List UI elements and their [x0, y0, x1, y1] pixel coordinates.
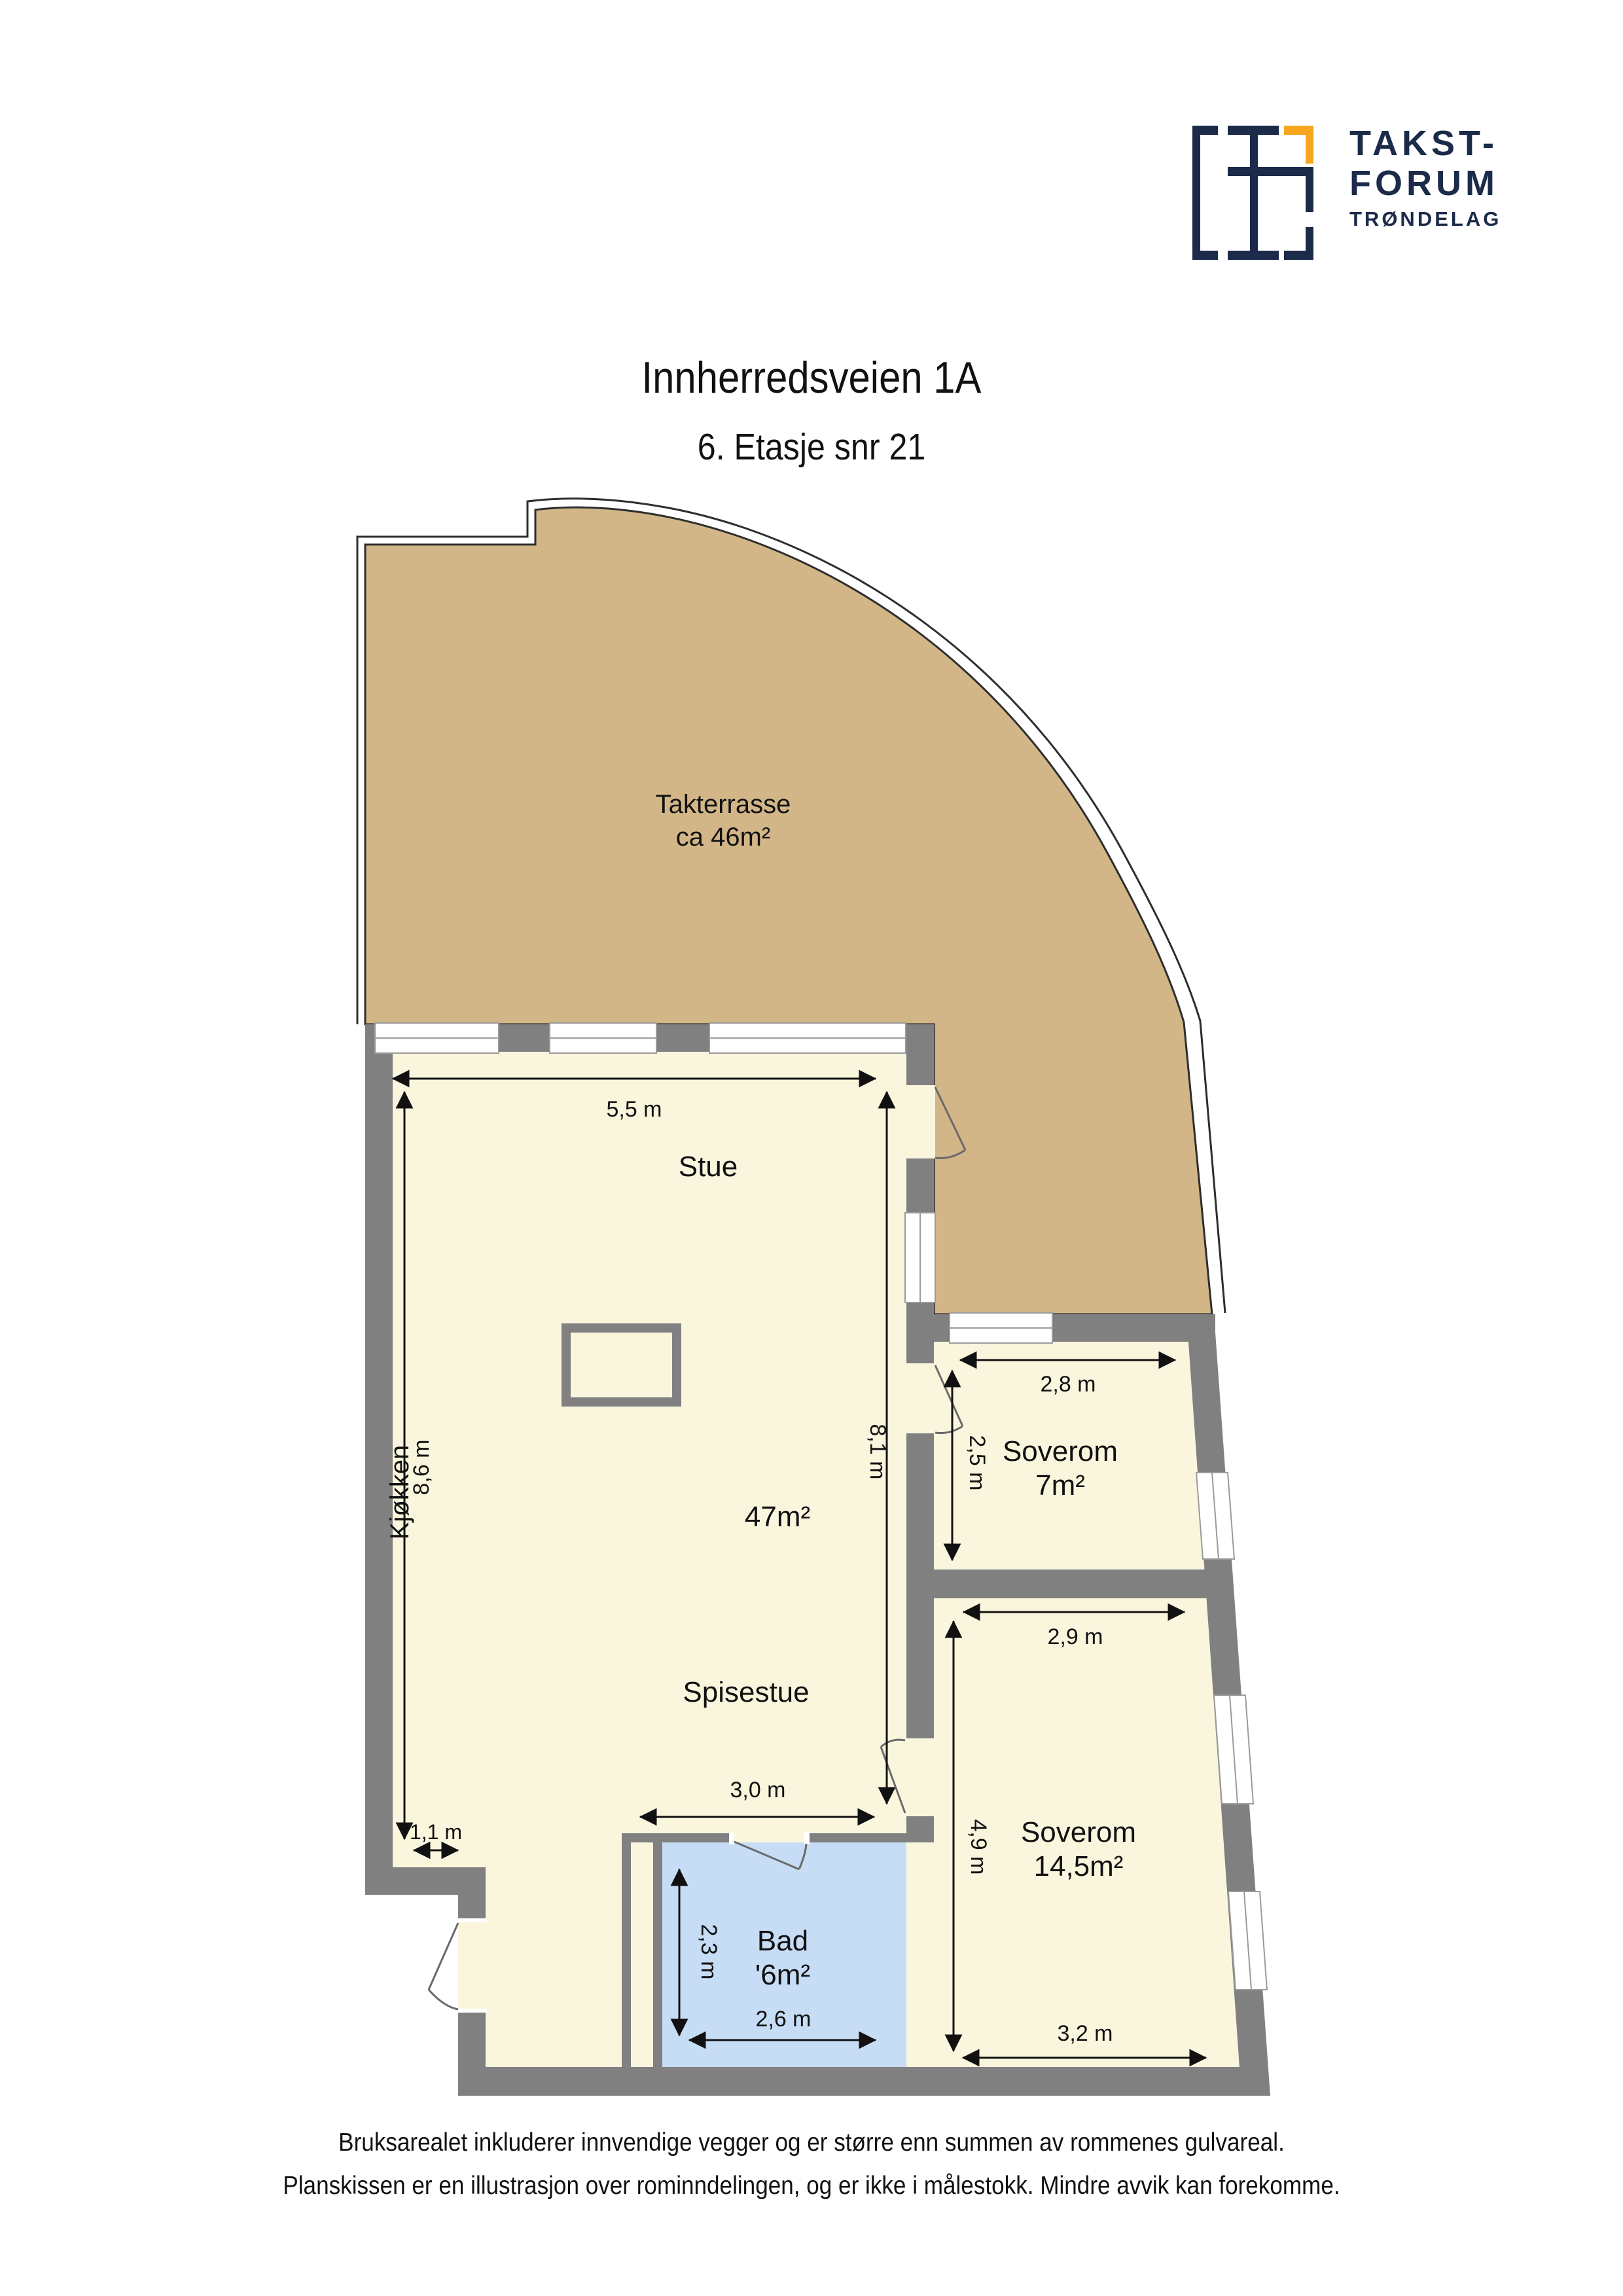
bath-door-jamb-right: [804, 1832, 810, 1844]
terrace-area-label: ca 46m²: [676, 823, 771, 852]
floorplan-page: Takterrasse ca 46m² Stue 47m² Kjøkken Sp…: [0, 0, 1623, 2296]
entry-door-jamb-bottom: [457, 2009, 487, 2013]
logo-wordmark: TAKST- FORUM TRØNDELAG: [1349, 126, 1501, 229]
entry-door-jamb-top: [457, 1918, 487, 1922]
terrace-label: Takterrasse: [656, 790, 791, 819]
logo-word-forum: FORUM: [1349, 166, 1501, 201]
dim-sov2-h: 4,9 m: [966, 1819, 991, 1874]
dim-sov2-w2: 3,2 m: [1057, 2021, 1113, 2046]
bath-door-jamb-left: [729, 1832, 734, 1844]
footer-disclaimer-line1: Bruksarealet inkluderer innvendige vegge…: [81, 2128, 1542, 2157]
dim-bad-h: 2,3 m: [696, 1924, 721, 1979]
dim-kjokken-w: 1,1 m: [410, 1820, 462, 1844]
dim-spisestue-w: 3,0 m: [730, 1778, 785, 1803]
dim-sov1-w: 2,8 m: [1040, 1372, 1096, 1397]
soverom-large-label: Soverom: [1021, 1816, 1136, 1848]
dim-stue-w: 5,5 m: [606, 1097, 662, 1122]
wall-bedroom-divider: [934, 1570, 1207, 1598]
wall-entry-upper: [458, 1895, 486, 1921]
wall-shaft-right: [653, 1833, 662, 2067]
opening-sov2-door: [905, 1738, 935, 1816]
dim-bad-w: 2,6 m: [755, 2007, 811, 2032]
footer-disclaimer-line2: Planskissen er en illustrasjon over romi…: [81, 2172, 1542, 2200]
takstforum-logo: TAKST- FORUM TRØNDELAG: [1192, 126, 1501, 263]
dim-kjokken-h: 8,6 m: [409, 1439, 434, 1495]
soverom-small-area-label: 7m²: [1035, 1469, 1085, 1501]
wall-bottom: [458, 2067, 1270, 2096]
wall-left-step: [365, 1867, 486, 1895]
stue-shaft: [566, 1328, 677, 1402]
wall-bath-top-right: [807, 1833, 934, 1842]
dim-sov2-w: 2,9 m: [1047, 1624, 1103, 1649]
logo-orange-corner: [1284, 126, 1313, 164]
page-title: Innherredsveien 1A: [98, 352, 1525, 403]
soverom-small-label: Soverom: [1003, 1435, 1118, 1467]
stue-area-label: 47m²: [745, 1501, 810, 1533]
opening-sov1-door: [905, 1363, 935, 1433]
wall-shaft-left: [622, 1833, 631, 2067]
page-subtitle: 6. Etasje snr 21: [98, 425, 1525, 469]
dim-sov1-h: 2,5 m: [965, 1435, 990, 1490]
entry-door-swing: [429, 1923, 458, 2009]
logo-word-takst: TAKST-: [1349, 126, 1501, 161]
takstforum-logo-mark: [1192, 126, 1323, 263]
bad-label: Bad: [757, 1925, 808, 1957]
opening-terrace-door: [905, 1085, 935, 1158]
bad-area-label: '6m²: [755, 1959, 810, 1991]
spisestue-label: Spisestue: [683, 1676, 809, 1708]
wall-bath-top-left: [622, 1833, 733, 1842]
dim-stue-h: 8,1 m: [865, 1424, 890, 1479]
stue-label: Stue: [679, 1151, 738, 1183]
floorplan-drawing: Takterrasse ca 46m² Stue 47m² Kjøkken Sp…: [0, 0, 1623, 2296]
logo-word-trondelag: TRØNDELAG: [1349, 209, 1501, 229]
soverom-large-area-label: 14,5m²: [1034, 1850, 1124, 1882]
